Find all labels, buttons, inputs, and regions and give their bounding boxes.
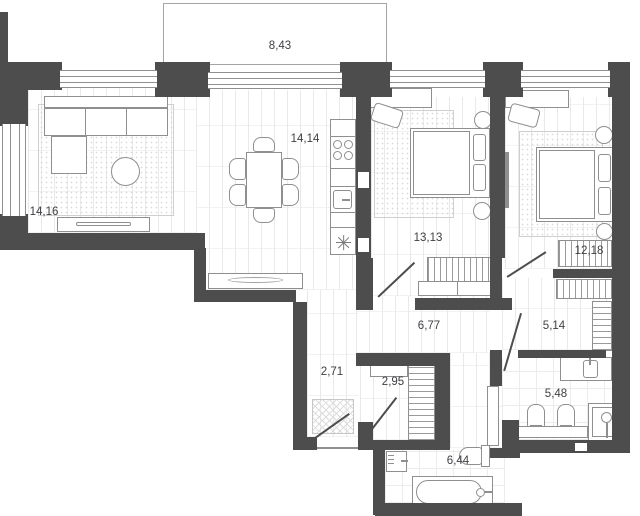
room-area-label-balcony: 8,43: [269, 40, 291, 52]
window: [390, 70, 485, 88]
sofa-chaise: [51, 136, 87, 174]
kitchen-sink-tap: [342, 199, 350, 201]
balcony-outline: [163, 3, 387, 65]
pillow: [598, 187, 611, 215]
room-area-label-closet: 2,95: [382, 376, 404, 388]
basin-detail: [388, 459, 394, 460]
wall-segment: [155, 62, 210, 97]
stove-burner: [333, 140, 342, 149]
wall-segment: [502, 440, 630, 453]
basin-tap: [401, 460, 408, 462]
window: [60, 70, 157, 88]
dining-chair: [282, 158, 299, 180]
nightstand: [596, 223, 613, 240]
wall-segment: [435, 353, 450, 450]
sofa-cushion-divider: [85, 109, 86, 135]
wall-segment: [375, 503, 522, 516]
room-area-label-entry-hall: 2,71: [321, 366, 343, 378]
room-area-label-bathroom-2: 6,44: [447, 455, 469, 467]
nightstand: [595, 126, 613, 144]
wardrobe-hangers: [427, 257, 497, 282]
wall-segment: [293, 302, 307, 448]
wall-segment: [0, 90, 28, 126]
wardrobe-front: [418, 281, 498, 296]
room-area-label-living-room: 14,16: [30, 206, 59, 218]
wall-segment: [553, 269, 630, 278]
wall-segment: [356, 258, 373, 310]
tv: [76, 222, 131, 226]
counter-divider: [331, 168, 355, 169]
wall-segment: [490, 350, 502, 386]
basin-detail: [388, 455, 394, 456]
wall-segment: [490, 80, 505, 258]
bed-mattress: [539, 150, 595, 219]
floor-hallway: [450, 353, 490, 448]
washbasin: [583, 360, 598, 378]
stove-burner: [344, 140, 353, 149]
room-area-label-bedroom-1: 13,13: [414, 232, 443, 244]
room-area-label-bedroom-2: 12,18: [575, 245, 604, 257]
shelf-unit: [592, 301, 612, 351]
dining-chair: [229, 184, 246, 206]
room-area-label-wardrobe: 5,14: [543, 320, 565, 332]
sofa-back: [44, 96, 168, 108]
room-area-label-kitchen-dining: 14,14: [291, 133, 320, 145]
counter-divider: [331, 227, 355, 228]
counter-divider: [331, 186, 355, 187]
dining-chair: [253, 208, 275, 223]
wall-segment: [490, 448, 520, 458]
stove-burner: [333, 151, 342, 160]
bathtub-spout: [484, 491, 493, 493]
wall-segment: [373, 440, 385, 515]
doormat: [312, 399, 354, 434]
balcony-door-window: [208, 72, 342, 89]
entry-threshold: [317, 447, 358, 449]
wall-segment: [340, 62, 392, 97]
console-decor: [228, 277, 283, 283]
wall-segment: [490, 258, 502, 304]
coffee-table: [111, 157, 140, 186]
basin-tap: [589, 358, 591, 365]
closet-rail: [408, 357, 435, 441]
toilet-frame: [517, 426, 588, 438]
dining-table: [246, 152, 282, 208]
window: [521, 70, 610, 88]
door-leaf: [487, 386, 499, 446]
dining-chair: [229, 158, 246, 180]
counter-divider: [331, 136, 355, 137]
bidet: [557, 404, 575, 428]
toilet: [527, 404, 545, 428]
wall-shaft: [358, 238, 369, 252]
stove-burner: [344, 151, 353, 160]
room-area-label-bathroom: 5,48: [545, 388, 567, 400]
room-area-label-hallway: 6,77: [418, 320, 440, 332]
wardrobe-divider: [457, 282, 458, 295]
wall-segment: [194, 290, 296, 302]
wall-segment: [608, 62, 630, 97]
floor-plan: 8,43 14,16 14,14 13,13 12,18 6,77 5,14 2…: [0, 0, 640, 516]
wall-niche: [575, 443, 587, 451]
wardrobe-hangers: [556, 279, 612, 299]
dining-chair: [282, 184, 299, 206]
pillow: [598, 154, 611, 182]
wall-segment: [518, 350, 606, 358]
wall-segment: [356, 353, 442, 366]
bed-mattress: [413, 131, 470, 195]
wall-segment: [0, 233, 205, 250]
counter-divider: [331, 212, 355, 213]
toilet-tank: [481, 445, 490, 467]
sofa-seats: [44, 108, 168, 136]
wall-segment: [0, 62, 62, 90]
shower-drain: [601, 412, 612, 423]
nightstand: [473, 202, 491, 220]
dining-chair: [253, 137, 275, 152]
shower-drain-stem: [606, 423, 608, 438]
window: [2, 124, 26, 216]
pillow: [473, 164, 486, 191]
fridge-icon: [336, 234, 351, 249]
pillow: [473, 134, 486, 161]
mirror: [505, 152, 509, 208]
basin-detail: [388, 463, 394, 464]
wall-shaft: [358, 172, 369, 188]
bathtub-basin: [416, 480, 482, 504]
sofa-cushion-divider: [126, 109, 127, 135]
